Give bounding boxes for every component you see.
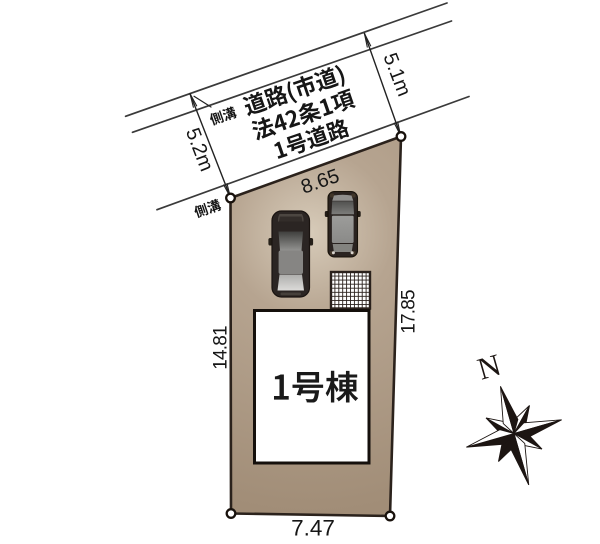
svg-text:14.81: 14.81: [211, 326, 232, 370]
svg-text:17.85: 17.85: [399, 290, 420, 334]
svg-text:7.47: 7.47: [291, 516, 335, 541]
